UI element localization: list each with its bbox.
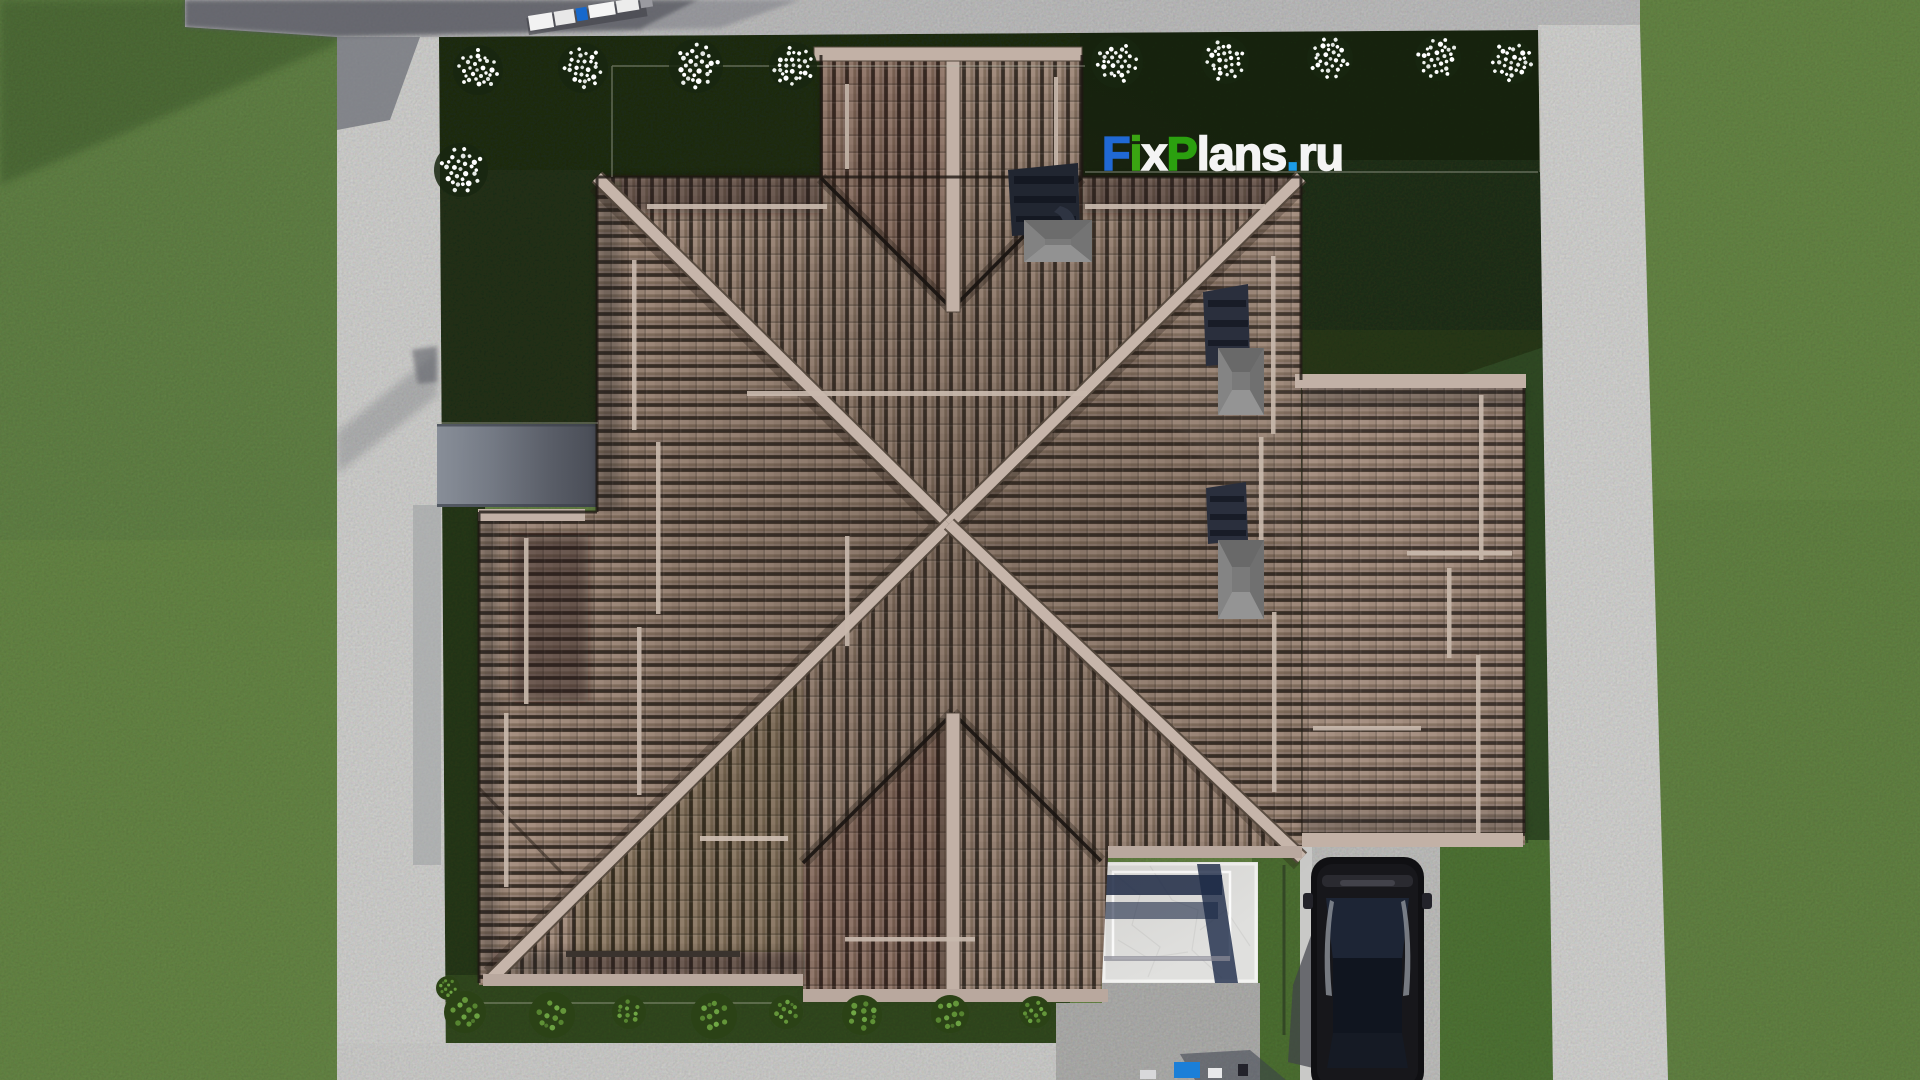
svg-text:FixPlans.ru: FixPlans.ru xyxy=(1102,127,1343,180)
